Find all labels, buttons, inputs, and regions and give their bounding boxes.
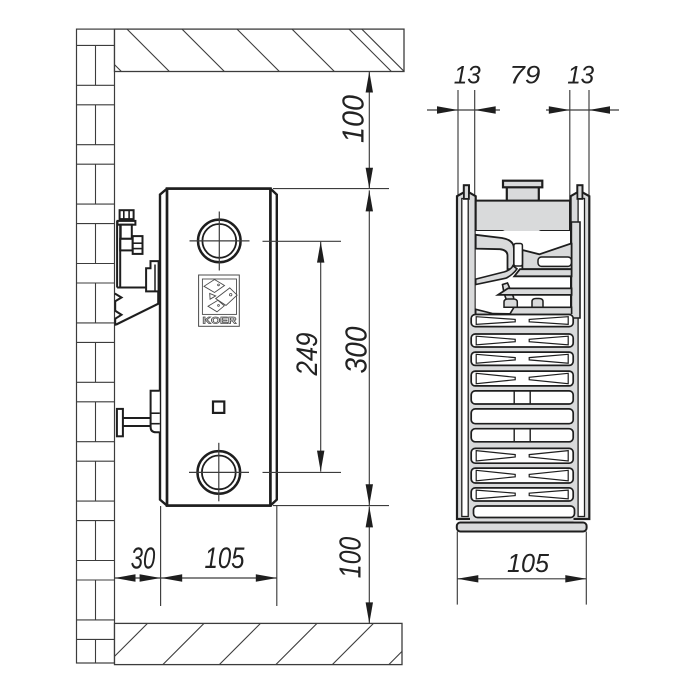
svg-text:249: 249 xyxy=(291,332,324,376)
svg-text:105: 105 xyxy=(507,548,550,578)
svg-text:100: 100 xyxy=(336,95,371,143)
svg-text:KOER: KOER xyxy=(203,315,238,325)
svg-text:13: 13 xyxy=(454,62,481,90)
svg-text:300: 300 xyxy=(339,327,374,374)
svg-text:100: 100 xyxy=(333,537,367,579)
svg-text:105: 105 xyxy=(205,542,245,575)
svg-text:13: 13 xyxy=(567,62,594,90)
svg-text:30: 30 xyxy=(131,541,156,576)
svg-text:79: 79 xyxy=(509,62,540,90)
